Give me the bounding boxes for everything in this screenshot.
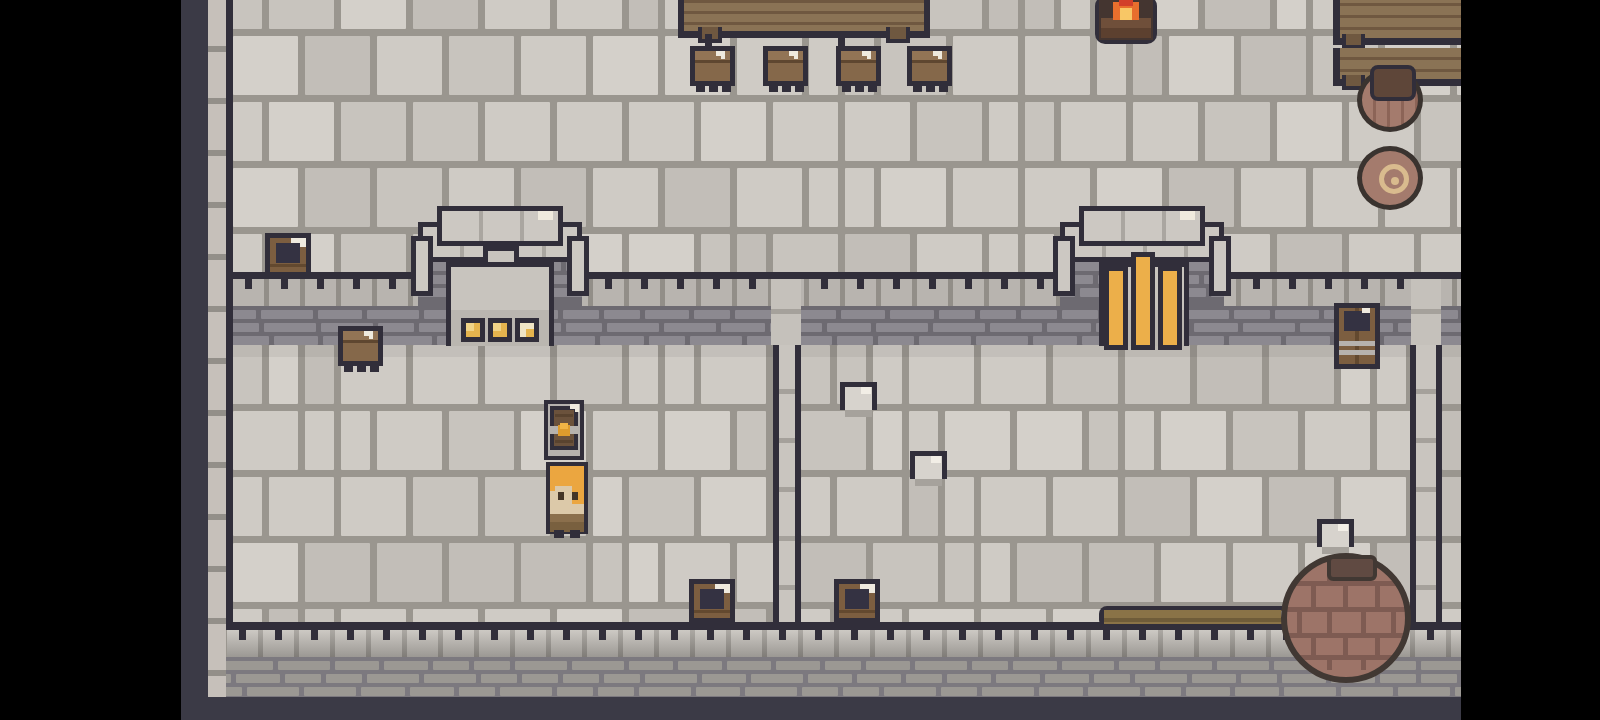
floor-tile <box>1017 411 1082 470</box>
floor-tile <box>557 0 622 29</box>
floor-tile <box>981 609 1046 622</box>
wall-brick <box>837 336 873 345</box>
floor-tile <box>1061 102 1126 161</box>
floor-tile <box>629 543 658 602</box>
divider-wall <box>1410 345 1442 622</box>
wall-brick <box>947 674 991 683</box>
floor-tile <box>413 609 478 622</box>
portcullis-bar[interactable] <box>1158 266 1182 350</box>
wall-brick <box>598 687 634 696</box>
wall-brick <box>304 687 356 696</box>
wall-brick <box>933 323 985 332</box>
floor-tile <box>1097 36 1126 95</box>
arch-cap-inner <box>1079 206 1205 246</box>
floor-tile <box>1133 36 1162 95</box>
floor-tile <box>665 411 730 470</box>
floor-tile <box>809 36 838 95</box>
floor-tile <box>233 36 298 95</box>
floor-tile <box>953 168 1018 227</box>
wall-brick <box>690 336 742 345</box>
wall-brick <box>1421 674 1457 683</box>
wall-brick <box>604 310 640 319</box>
large-clay-pot[interactable] <box>1281 553 1411 683</box>
stool[interactable] <box>690 46 735 92</box>
floor-tile <box>341 102 406 161</box>
wall-brick <box>1229 336 1281 345</box>
wall-brick <box>607 323 659 332</box>
wall-brick <box>1188 336 1224 345</box>
wall-brick <box>1398 687 1450 696</box>
floor-tile <box>1421 102 1461 161</box>
floor-tile <box>233 234 262 272</box>
wall-brick <box>876 323 928 332</box>
floor-tile <box>233 102 262 161</box>
floor-tile <box>341 609 406 622</box>
south-edge <box>181 697 1461 720</box>
west-wall-line <box>226 0 233 630</box>
wall-brick <box>236 674 280 683</box>
arch-column <box>1209 236 1231 296</box>
floor-tile <box>917 102 982 161</box>
wall-ticks <box>1001 279 1008 289</box>
arch-column <box>411 236 433 296</box>
wall-brick <box>649 336 685 345</box>
wall-ticks <box>353 279 360 289</box>
wall-brick <box>990 323 1042 332</box>
south-ticks <box>419 630 426 640</box>
floor-tile <box>629 0 658 29</box>
floor-tile <box>945 477 974 536</box>
wall-brick <box>664 323 716 332</box>
south-ticks <box>491 630 498 640</box>
wall-brick-band <box>233 306 1461 345</box>
floor-tile <box>701 234 730 272</box>
floor-tile <box>269 477 334 536</box>
floor-tile <box>593 477 622 536</box>
wall-brick <box>367 310 419 319</box>
floor-tile <box>1442 411 1461 470</box>
wall-brick <box>1045 674 1089 683</box>
wall-ticks <box>1397 279 1404 289</box>
wall-brick <box>1455 687 1461 696</box>
wall-barrel[interactable] <box>1334 303 1380 369</box>
floor-tile <box>737 543 773 602</box>
floor-tile <box>449 36 514 95</box>
floor-tile <box>917 234 982 272</box>
wall-brick <box>843 687 879 696</box>
stone-block[interactable] <box>910 451 947 486</box>
floor-tile <box>305 36 370 95</box>
south-ticks <box>527 630 534 640</box>
wall-brick <box>563 310 599 319</box>
floor-tile <box>737 411 766 470</box>
wall-brick <box>629 661 673 670</box>
south-ticks <box>743 630 750 640</box>
south-ticks <box>995 630 1002 640</box>
wall-brick <box>915 661 967 670</box>
wall-brick <box>841 310 885 319</box>
south-ticks <box>671 630 678 640</box>
floor-tile <box>305 609 334 622</box>
wall-brick <box>980 310 1016 319</box>
floor-tile <box>305 168 370 227</box>
south-ticks <box>851 630 858 640</box>
arch-column <box>1053 236 1075 296</box>
wall-brick <box>233 310 256 319</box>
campfire[interactable] <box>1095 0 1157 44</box>
wall-ticks <box>821 279 828 289</box>
floor-tile <box>377 411 442 470</box>
floor-tile <box>413 0 478 29</box>
portcullis-bar[interactable] <box>1131 252 1155 350</box>
wall-ticks <box>857 279 864 289</box>
floor-tile <box>837 477 902 536</box>
wall-ticks <box>317 279 324 289</box>
wall-brick <box>919 336 971 345</box>
open-crate[interactable] <box>265 233 311 277</box>
open-crate[interactable] <box>689 579 735 623</box>
wall-brick <box>335 661 379 670</box>
wall-ticks <box>245 279 252 289</box>
floor-tile <box>873 543 938 602</box>
table-right-upper[interactable] <box>1333 0 1461 45</box>
floor-tile <box>1025 102 1054 161</box>
floor-tile <box>413 477 478 536</box>
wall-brick <box>410 687 454 696</box>
wall-brick <box>424 674 476 683</box>
altar-gold-tile <box>515 318 539 342</box>
wall-brick <box>906 674 942 683</box>
floor-tile <box>801 411 866 470</box>
floor-tile <box>989 234 1018 272</box>
floor-tile <box>909 609 974 622</box>
floor-tile <box>341 477 406 536</box>
wall-brick <box>808 674 852 683</box>
wall-ticks <box>965 279 972 289</box>
wall-brick <box>996 674 1040 683</box>
wall-ticks <box>713 279 720 289</box>
wall-brick <box>1033 336 1077 345</box>
floor-tile <box>989 102 1018 161</box>
floor-tile <box>845 234 910 272</box>
wall-brick <box>600 336 644 345</box>
wall-brick <box>264 323 316 332</box>
wall-brick <box>604 674 640 683</box>
floor-tile <box>629 102 694 161</box>
floor-tile <box>1442 609 1461 622</box>
south-ticks <box>779 630 786 640</box>
wall-brick <box>221 661 273 670</box>
wall-brick <box>247 687 299 696</box>
south-ticks <box>1139 630 1146 640</box>
wall-brick <box>1062 661 1114 670</box>
south-ticks <box>455 630 462 640</box>
south-ticks <box>707 630 714 640</box>
wall-brick <box>515 661 567 670</box>
floor-tile <box>233 609 262 622</box>
south-ticks <box>275 630 282 640</box>
south-ticks <box>1175 630 1182 640</box>
room-right-floor <box>1442 345 1461 622</box>
divider-wall-top <box>771 279 801 345</box>
floor-tile <box>1241 168 1306 227</box>
wall-brick <box>796 336 832 345</box>
south-ticks <box>347 630 354 640</box>
wall-brick <box>1119 661 1155 670</box>
floor-tile <box>377 543 442 602</box>
floor-tile <box>1025 0 1054 29</box>
floor-tile <box>233 0 262 29</box>
west-wall-column <box>208 0 226 697</box>
floor-tile <box>413 102 478 161</box>
wall-ticks <box>1289 279 1296 289</box>
wall-brick <box>566 323 602 332</box>
arch-cap-inner <box>437 206 563 246</box>
floor-tile <box>485 102 550 161</box>
floor-tile <box>1349 234 1414 272</box>
wall-brick <box>384 661 428 670</box>
floor-tile <box>1197 477 1262 536</box>
floor-tile <box>1205 0 1270 29</box>
wall-ticks <box>1361 279 1368 289</box>
wall-brick <box>802 687 838 696</box>
floor-tile <box>1241 36 1306 95</box>
wall-brick <box>890 310 934 319</box>
south-ticks <box>1103 630 1110 640</box>
floor-tile <box>1053 477 1118 536</box>
floor-tile <box>801 477 830 536</box>
floor-tile <box>233 411 298 470</box>
wall-brick <box>751 674 803 683</box>
floor-tile <box>945 411 1010 470</box>
floor-tile <box>773 234 838 272</box>
floor-tile <box>629 609 694 622</box>
floor-tile <box>1233 411 1298 470</box>
open-crate[interactable] <box>834 579 880 623</box>
floor-tile <box>269 609 298 622</box>
wooden-stick[interactable] <box>1099 606 1303 628</box>
floor-tile <box>629 477 694 536</box>
floor-tile <box>593 168 658 227</box>
floor-tile <box>377 168 442 227</box>
west-edge <box>181 0 208 720</box>
floor-tile <box>341 411 370 470</box>
floor-tile <box>1442 477 1461 536</box>
wall-brick <box>857 674 901 683</box>
floor-tile <box>737 168 802 227</box>
altar-gold-tile <box>488 318 512 342</box>
wall-ticks <box>677 279 684 289</box>
game-viewport[interactable] <box>181 0 1461 720</box>
floor-tile <box>801 609 830 622</box>
wall-brick <box>563 674 599 683</box>
floor-tile <box>1277 102 1342 161</box>
floor-tile <box>1305 411 1370 470</box>
floor-tile <box>1377 411 1410 470</box>
floor-tile <box>773 102 838 161</box>
floor-tile <box>1442 543 1461 602</box>
wall-brick <box>1380 674 1416 683</box>
wall-brick <box>721 323 765 332</box>
wall-brick <box>233 323 259 332</box>
wall-brick <box>1235 687 1279 696</box>
wall-brick <box>827 323 871 332</box>
rope-coil-pot[interactable] <box>1357 146 1423 210</box>
wall-brick <box>1088 687 1140 696</box>
wall-brick <box>1194 323 1238 332</box>
floor-tile <box>1125 411 1154 470</box>
wall-ticks <box>1037 279 1044 289</box>
south-ticks <box>959 630 966 640</box>
south-brick-band <box>208 657 1461 697</box>
divider-wall-top <box>1411 279 1441 345</box>
south-ticks <box>635 630 642 640</box>
wall-ticks <box>605 279 612 289</box>
floor-tile <box>593 36 658 95</box>
floor-tile <box>449 411 514 470</box>
floor-tile <box>557 609 622 622</box>
floor-tile <box>521 543 586 602</box>
wall-brick <box>522 674 558 683</box>
arch-column <box>567 236 589 296</box>
stone-block[interactable] <box>840 382 877 417</box>
wall-brick <box>1192 674 1236 683</box>
south-ticks <box>1247 630 1254 640</box>
stool[interactable] <box>907 46 952 92</box>
wall-brick <box>285 674 321 683</box>
south-ticks <box>1031 630 1038 640</box>
wall-brick <box>318 310 362 319</box>
wall-brick <box>1275 310 1319 319</box>
wall-brick <box>1062 310 1098 319</box>
south-ticks <box>815 630 822 640</box>
stool[interactable] <box>763 46 808 92</box>
player-character[interactable] <box>546 462 588 538</box>
wall-brick <box>941 687 977 696</box>
wall-brick <box>1439 323 1461 332</box>
wall-brick <box>326 674 362 683</box>
floor-tile <box>1089 543 1154 602</box>
floor-tile <box>269 0 334 29</box>
wall-brick <box>1160 661 1212 670</box>
wall-shadow <box>233 345 1461 357</box>
wall-brick <box>645 310 689 319</box>
floor-tile <box>341 0 406 29</box>
wall-ticks <box>893 279 900 289</box>
south-ticks <box>1211 630 1218 640</box>
floor-tile <box>593 543 622 602</box>
wall-brick <box>884 687 936 696</box>
floor-tile <box>449 543 514 602</box>
banquet-table[interactable] <box>678 0 930 38</box>
floor-tile <box>485 477 550 536</box>
floor-tile <box>845 168 874 227</box>
floor-tile <box>1017 543 1082 602</box>
wall-ticks <box>1253 279 1260 289</box>
wall-brick <box>745 687 797 696</box>
wall-brick <box>361 687 405 696</box>
wall-brick <box>1039 687 1083 696</box>
storage-barrel[interactable] <box>1357 68 1423 132</box>
wall-ticks <box>281 279 288 289</box>
wall-brick <box>378 323 414 332</box>
floor-tile <box>1125 477 1190 536</box>
wall-brick <box>500 687 552 696</box>
divider-wall <box>773 345 801 622</box>
floor-tile <box>1025 36 1090 95</box>
floor-tile <box>1169 36 1234 95</box>
stool[interactable] <box>338 326 383 372</box>
wall-brick <box>261 310 313 319</box>
floor-tile <box>1133 102 1198 161</box>
floor-tile <box>485 609 550 622</box>
floor-tile <box>845 102 910 161</box>
south-tile-row <box>227 630 1461 657</box>
wall-brick <box>727 661 771 670</box>
wall-brick <box>1234 310 1270 319</box>
wall-brick <box>481 674 517 683</box>
floor-tile <box>1277 0 1306 29</box>
floor-tile <box>593 411 658 470</box>
treasure-chest[interactable] <box>544 400 584 460</box>
south-ticks <box>239 630 246 640</box>
stone-block[interactable] <box>1317 519 1354 554</box>
floor-tile <box>981 543 1010 602</box>
wall-brick <box>702 674 746 683</box>
wall-ticks <box>1325 279 1332 289</box>
portcullis-bar[interactable] <box>1104 266 1128 350</box>
wall-brick <box>1047 323 1091 332</box>
wall-brick <box>474 661 510 670</box>
altar-gold-tile <box>461 318 485 342</box>
wall-ticks <box>641 279 648 289</box>
floor-tile <box>269 102 334 161</box>
floor-tile <box>233 543 298 602</box>
wall-ticks <box>929 279 936 289</box>
floor-tile <box>629 234 694 272</box>
wall-brick <box>1094 674 1130 683</box>
wall-brick <box>274 336 318 345</box>
floor-tile <box>1161 411 1226 470</box>
floor-tile <box>485 0 550 29</box>
wall-brick <box>1284 687 1336 696</box>
floor-tile <box>1457 168 1461 227</box>
wall-brick <box>1243 323 1295 332</box>
south-ticks <box>599 630 606 640</box>
wall-brick <box>1286 336 1330 345</box>
wall-brick <box>557 687 593 696</box>
wall-brick <box>639 687 691 696</box>
wall-brick <box>776 661 820 670</box>
floor-tile <box>701 477 766 536</box>
stool[interactable] <box>836 46 881 92</box>
wall-brick <box>825 661 861 670</box>
wall-brick <box>278 661 330 670</box>
floor-tile <box>1161 543 1226 602</box>
wall-brick <box>1241 674 1277 683</box>
wall-brick <box>459 687 495 696</box>
floor-tile <box>881 168 946 227</box>
wall-brick <box>678 661 722 670</box>
floor-tile <box>1205 102 1270 161</box>
floor-tile <box>233 477 262 536</box>
floor-tile <box>233 168 298 227</box>
wall-brick <box>982 687 1034 696</box>
wall-brick <box>367 674 419 683</box>
floor-tile <box>1025 234 1054 272</box>
floor-tile <box>341 234 406 272</box>
wall-ticks <box>749 279 756 289</box>
